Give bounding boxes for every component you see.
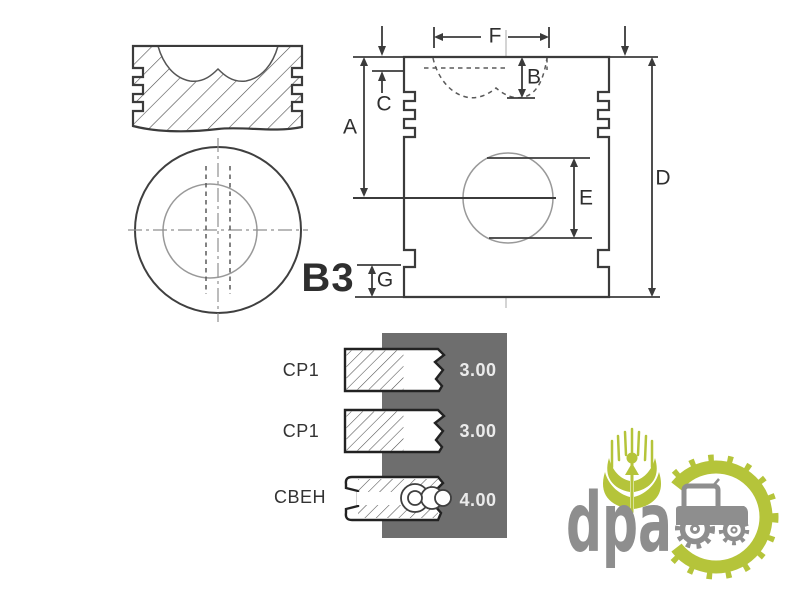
- drawing-canvas: dpa: [0, 0, 800, 600]
- dimension-label-f: F: [489, 26, 502, 47]
- dimension-label-g: G: [377, 270, 393, 291]
- piston-top-view: [128, 138, 308, 322]
- dpa-logo: dpa: [566, 429, 775, 576]
- ring-row-label: CP1: [283, 422, 320, 440]
- oil-control-ring-cross-section: [346, 477, 451, 520]
- dimension-label-c: C: [376, 94, 391, 115]
- piston-outline-body: [404, 57, 609, 297]
- dimension-label-b: B: [527, 67, 541, 88]
- piston-side-outline: [353, 26, 660, 308]
- tractor-icon: [676, 479, 748, 547]
- ring-row-value: 3.00: [459, 361, 496, 379]
- logo-wordmark: dpa: [566, 476, 672, 571]
- piston-cross-section-view: [133, 46, 302, 131]
- dimension-line-a: [360, 57, 368, 197]
- product-technical-drawing: dpa A B C: [0, 0, 800, 600]
- ring-row-label: CP1: [283, 361, 320, 379]
- dimension-line-c: [378, 71, 386, 93]
- ring-row-value: 4.00: [459, 491, 496, 509]
- ring-row-label: CBEH: [274, 488, 326, 506]
- dimension-label-e: E: [579, 188, 593, 209]
- part-label: B3: [301, 258, 354, 298]
- datum-arrow-right: [621, 26, 629, 56]
- bowl-circle: [163, 184, 257, 278]
- ring-row-value: 3.00: [459, 422, 496, 440]
- datum-arrow-left: [378, 26, 386, 56]
- dimension-label-a: A: [343, 117, 357, 138]
- dimension-label-d: D: [655, 168, 670, 189]
